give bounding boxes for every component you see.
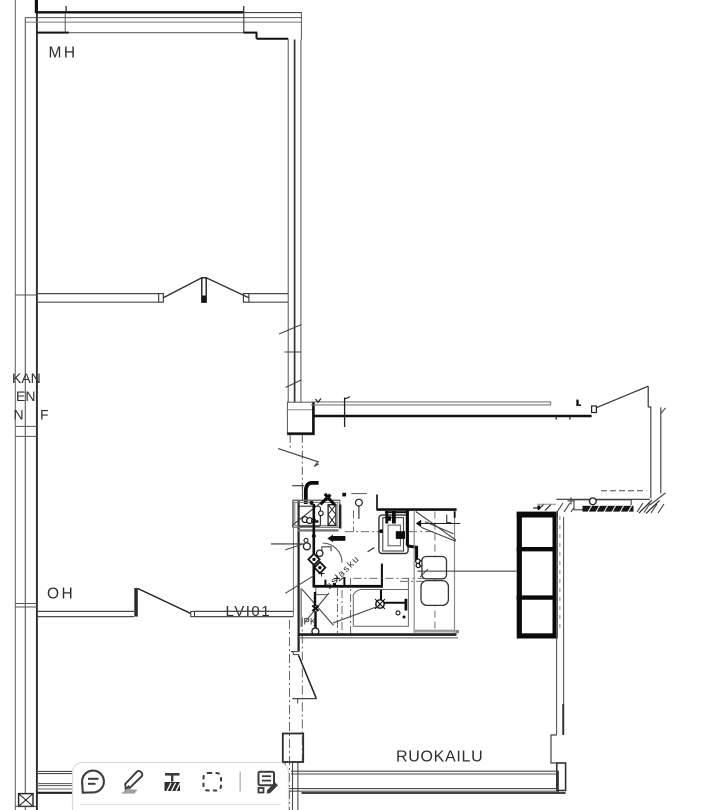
svg-text:L: L — [445, 514, 452, 526]
svg-text:MH: MH — [49, 45, 78, 62]
svg-text:RUOKAILU: RUOKAILU — [396, 749, 483, 766]
svg-text:KAN: KAN — [12, 370, 41, 386]
svg-text:OH: OH — [47, 586, 75, 603]
svg-text:N: N — [14, 407, 24, 423]
svg-text:F: F — [40, 407, 49, 423]
svg-text:EN: EN — [16, 388, 35, 404]
